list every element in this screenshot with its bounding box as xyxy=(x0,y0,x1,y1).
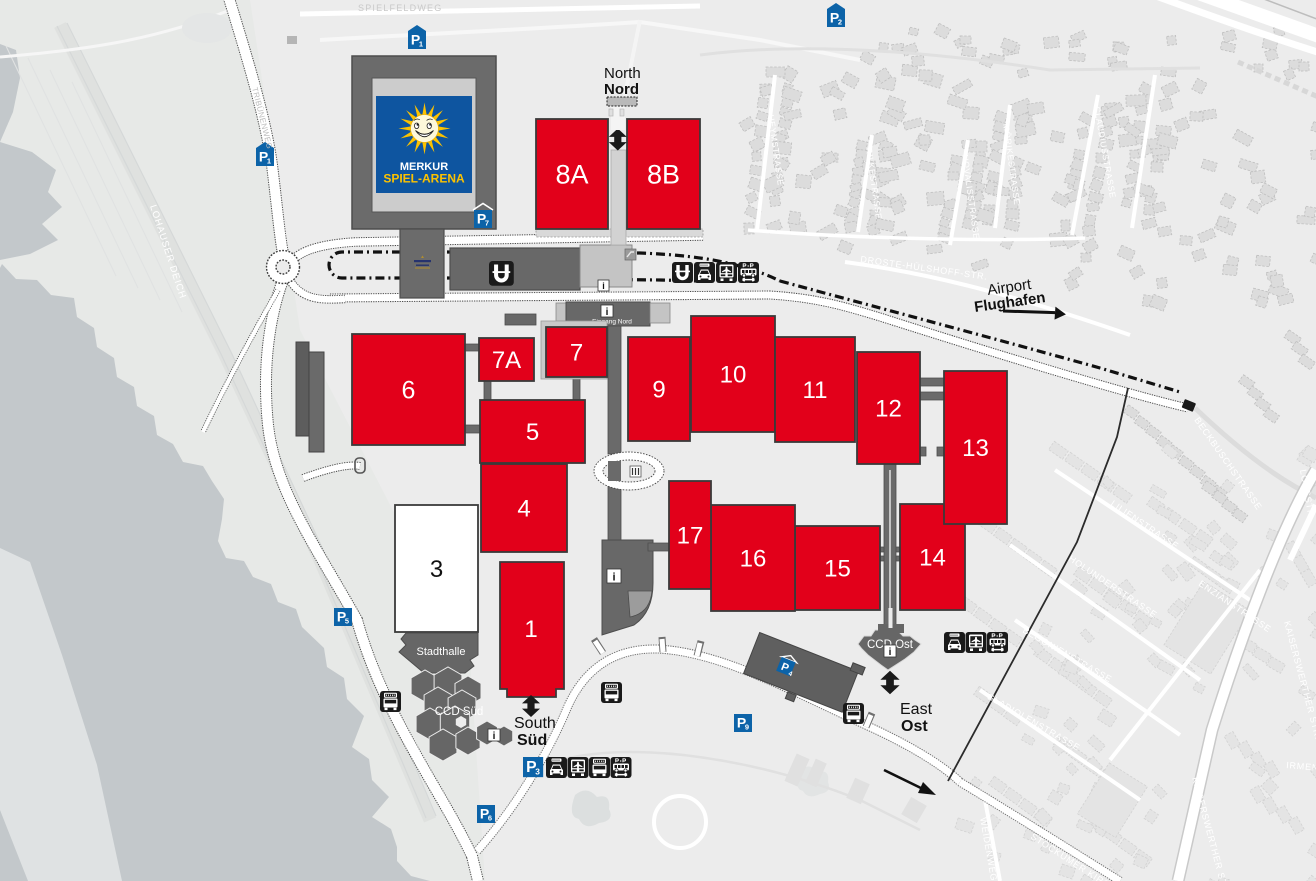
svg-text:9: 9 xyxy=(652,376,665,403)
svg-text:14: 14 xyxy=(919,544,946,571)
svg-text:3: 3 xyxy=(535,766,540,776)
svg-text:16: 16 xyxy=(740,545,767,572)
svg-text:East: East xyxy=(900,701,933,718)
svg-text:2: 2 xyxy=(838,18,842,27)
svg-text:i: i xyxy=(493,731,496,742)
svg-text:13: 13 xyxy=(962,435,989,462)
svg-text:Ost: Ost xyxy=(901,718,928,735)
svg-text:Nord: Nord xyxy=(604,81,639,98)
svg-text:3: 3 xyxy=(430,556,443,583)
svg-text:South: South xyxy=(514,715,556,732)
svg-text:SPIELFELDWEG: SPIELFELDWEG xyxy=(358,3,442,13)
svg-text:15: 15 xyxy=(824,555,851,582)
svg-text:1: 1 xyxy=(524,616,537,643)
svg-text:8B: 8B xyxy=(647,159,680,189)
svg-text:10: 10 xyxy=(720,361,747,388)
svg-text:6: 6 xyxy=(488,814,492,823)
svg-text:5: 5 xyxy=(345,617,349,626)
svg-text:7: 7 xyxy=(570,339,583,366)
svg-text:9: 9 xyxy=(745,723,749,732)
svg-text:SPIEL-ARENA: SPIEL-ARENA xyxy=(383,172,465,186)
svg-text:7: 7 xyxy=(485,219,489,228)
svg-text:7A: 7A xyxy=(492,347,521,374)
svg-text:i: i xyxy=(612,572,615,584)
svg-text:i: i xyxy=(889,647,892,658)
svg-text:4: 4 xyxy=(517,495,530,522)
svg-text:i: i xyxy=(602,281,605,291)
svg-text:6: 6 xyxy=(402,376,416,404)
svg-text:8A: 8A xyxy=(555,159,588,189)
svg-text:1: 1 xyxy=(267,157,271,166)
svg-text:CCD Süd: CCD Süd xyxy=(435,706,484,718)
svg-text:i: i xyxy=(606,307,609,318)
svg-text:17: 17 xyxy=(677,522,704,549)
svg-text:Stadthalle: Stadthalle xyxy=(417,646,466,658)
svg-text:1: 1 xyxy=(419,40,423,49)
svg-text:5: 5 xyxy=(526,419,539,446)
svg-text:12: 12 xyxy=(875,395,902,422)
svg-text:Süd: Süd xyxy=(517,732,547,749)
svg-text:11: 11 xyxy=(803,377,828,404)
svg-text:North: North xyxy=(604,65,641,82)
